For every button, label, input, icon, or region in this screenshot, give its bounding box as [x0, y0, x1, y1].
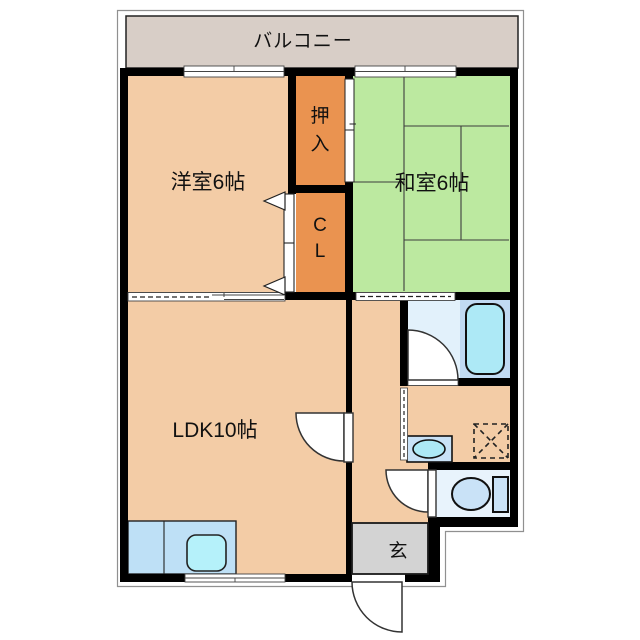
- western-room-label: 洋室6帖: [171, 171, 246, 194]
- closet-label-1: C: [313, 215, 327, 236]
- oshiire-closet: [296, 76, 345, 185]
- bathtub-symbol: [466, 304, 504, 374]
- toilet-symbol: [452, 478, 490, 510]
- window-japanese-room: [355, 66, 456, 77]
- oshiire-label-1: 押: [310, 105, 329, 127]
- toilet-tank: [493, 477, 508, 512]
- balcony-label: バルコニー: [253, 31, 353, 52]
- japanese-room-label: 和室6帖: [395, 172, 470, 195]
- sliding-door-western-ldk: [128, 293, 285, 302]
- sliding-door-japanese-room: [356, 293, 455, 301]
- floor-plan-canvas: バルコニー 洋室6帖 和室6帖 LDK10帖 押 入 C L 玄: [0, 0, 640, 640]
- floor-plan: バルコニー 洋室6帖 和室6帖 LDK10帖 押 入 C L 玄: [0, 0, 640, 640]
- washroom-partition: [401, 388, 408, 460]
- window-western-room: [184, 66, 284, 77]
- washbasin-bowl: [413, 440, 445, 458]
- ldk-label: LDK10帖: [172, 419, 257, 442]
- closet-label-2: L: [315, 241, 326, 262]
- oshiire-fusuma-doors: [345, 79, 356, 182]
- window-ldk: [185, 574, 285, 582]
- entrance-label: 玄: [388, 540, 407, 562]
- oshiire-label-2: 入: [310, 134, 329, 155]
- entrance-door: [352, 582, 402, 632]
- kitchen-sink-symbol: [187, 535, 226, 571]
